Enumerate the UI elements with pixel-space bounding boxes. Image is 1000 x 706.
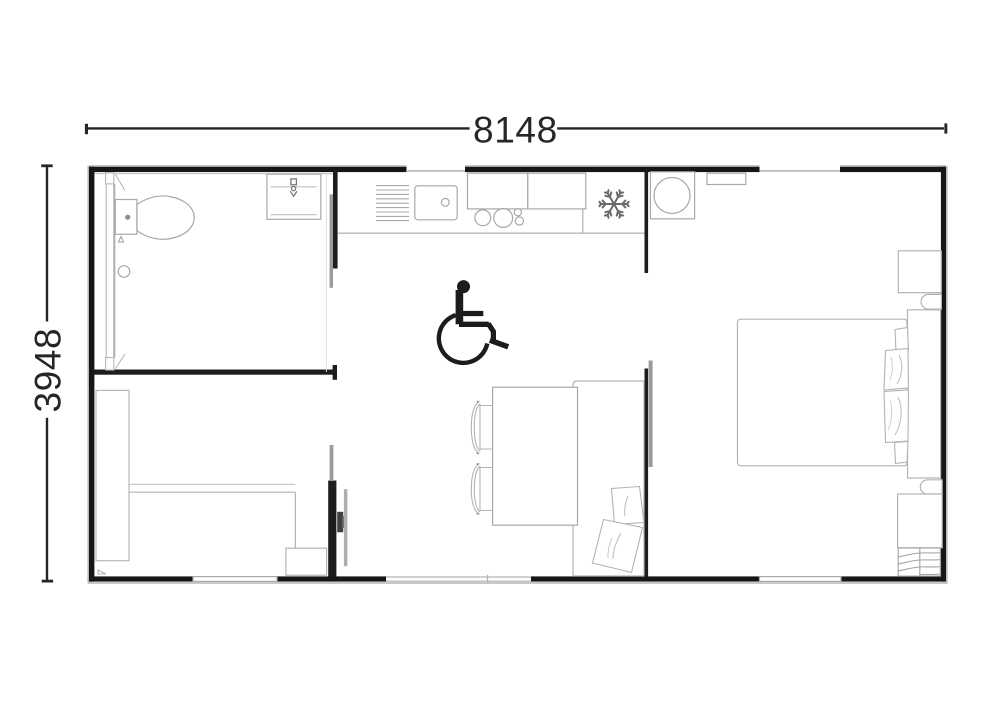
svg-text:8148: 8148	[473, 109, 558, 150]
svg-text:3948: 3948	[28, 328, 69, 413]
